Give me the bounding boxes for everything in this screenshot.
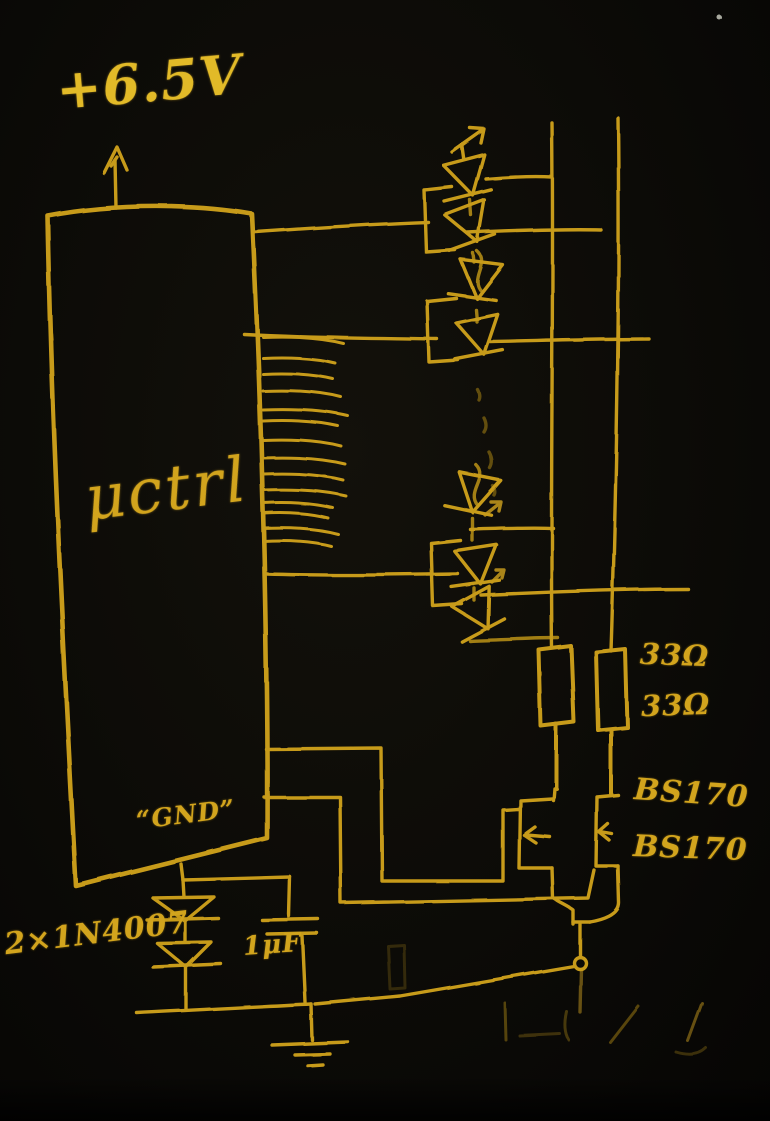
- led-bracket: [427, 298, 458, 362]
- mcu-to-led-wires: [244, 222, 458, 575]
- mcu-box: [48, 206, 267, 886]
- mcu-pin-stubs: [263, 337, 348, 546]
- ground-symbol-icon: [272, 1004, 348, 1066]
- resistor-r2: [596, 649, 627, 795]
- capacitor-label: 1μF: [242, 928, 303, 962]
- led-symbol: [448, 247, 506, 305]
- gate-wire-q1: [266, 748, 518, 881]
- diode-d2: [153, 942, 221, 1009]
- mosfet-q1: [519, 788, 573, 924]
- led-symbol: [440, 199, 496, 250]
- resistor-r1: [539, 646, 574, 788]
- led-symbol: [437, 141, 492, 201]
- power-arrow-icon: [104, 147, 127, 208]
- schematic-drawing: [0, 0, 770, 1121]
- transistor-q2-label: BS170: [632, 829, 748, 868]
- mosfet-q2: [590, 795, 619, 922]
- junction-dot: [574, 957, 586, 969]
- bottom-rail: [137, 1004, 311, 1013]
- faint-scribble: [388, 945, 706, 1054]
- resistor-r1-label: 33Ω: [639, 637, 709, 673]
- resistor-r2-label: 33Ω: [640, 687, 710, 723]
- light-arrow-icon: [452, 128, 484, 152]
- sketch-canvas: +6.5V μctrl “GND” 2×1N4007 1μF 33Ω 33Ω B…: [0, 0, 770, 1121]
- led-chain: [424, 128, 688, 642]
- rail-right: [611, 118, 619, 651]
- gnd-wire: [181, 864, 290, 897]
- rail-left: [551, 123, 552, 648]
- gate-wire-q2: [264, 797, 594, 903]
- source-junction: [315, 922, 590, 1012]
- rail-wires: [551, 118, 618, 651]
- light-arrow-icon: [485, 502, 504, 582]
- dust-speck: [717, 15, 722, 20]
